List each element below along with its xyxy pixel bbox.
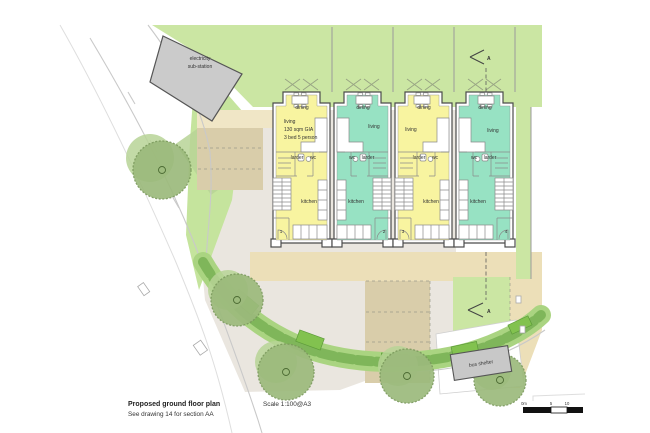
- scale-tick-0: 0m: [521, 401, 527, 406]
- floor-plan-page: electricity sub-station dining living 13…: [0, 0, 650, 433]
- unit-area-note: 130 sqm GIA: [284, 127, 314, 133]
- room-label-living: living: [368, 124, 380, 130]
- room-label-kitchen: kitchen: [301, 199, 317, 205]
- room-label-dining: dining: [478, 105, 492, 111]
- drawing-title: Proposed ground floor plan: [128, 401, 220, 408]
- frontage-path: [250, 252, 542, 281]
- title-block: Proposed ground floor plan Scale 1:100@A…: [128, 401, 312, 418]
- site-plan-drawing: electricity sub-station dining living 13…: [0, 0, 650, 433]
- scale-tick-2: 10: [565, 401, 570, 406]
- scale-tick-1: 5: [550, 401, 553, 406]
- room-label-living: living: [405, 127, 417, 133]
- room-label-kitchen: kitchen: [348, 199, 364, 205]
- unit-number: 4: [505, 229, 508, 234]
- house-unit-3: [393, 92, 454, 247]
- side-green-strip: [516, 107, 531, 279]
- room-label-dining: dining: [417, 105, 431, 111]
- unit-number: 3: [402, 229, 405, 234]
- room-label-kitchen: kitchen: [423, 199, 439, 205]
- drawing-note: See drawing 14 for section AA: [128, 411, 214, 418]
- substation-label-line1: electricity: [190, 56, 211, 62]
- room-label-living: living: [487, 128, 499, 134]
- house-unit-2: [332, 92, 393, 247]
- house-unit-1: [271, 92, 332, 247]
- room-label-larder: larder: [291, 155, 304, 161]
- house-unit-4: [454, 92, 515, 247]
- room-label-kitchen: kitchen: [470, 199, 486, 205]
- unit-number: 1: [280, 229, 283, 234]
- room-label-larder: larder: [413, 155, 426, 161]
- room-label-wc: wc: [349, 155, 356, 161]
- room-label-wc: wc: [310, 155, 317, 161]
- room-label-dining: dining: [295, 105, 309, 111]
- unit-number: 2: [383, 229, 386, 234]
- room-label-larder: larder: [484, 155, 497, 161]
- section-marker-bottom: A: [487, 309, 491, 315]
- scale-bar: 0m 5 10: [521, 394, 585, 413]
- room-label-dining: dining: [356, 105, 370, 111]
- room-label-wc: wc: [471, 155, 478, 161]
- section-marker-top: A: [487, 56, 491, 62]
- room-label-larder: larder: [362, 155, 375, 161]
- unit-occupancy-note: 3 bed 5 person: [284, 135, 318, 141]
- room-label-wc: wc: [432, 155, 439, 161]
- room-label-living: living: [284, 119, 296, 125]
- substation-label-line2: sub-station: [188, 64, 213, 70]
- drawing-scale: Scale 1:100@A3: [263, 401, 312, 408]
